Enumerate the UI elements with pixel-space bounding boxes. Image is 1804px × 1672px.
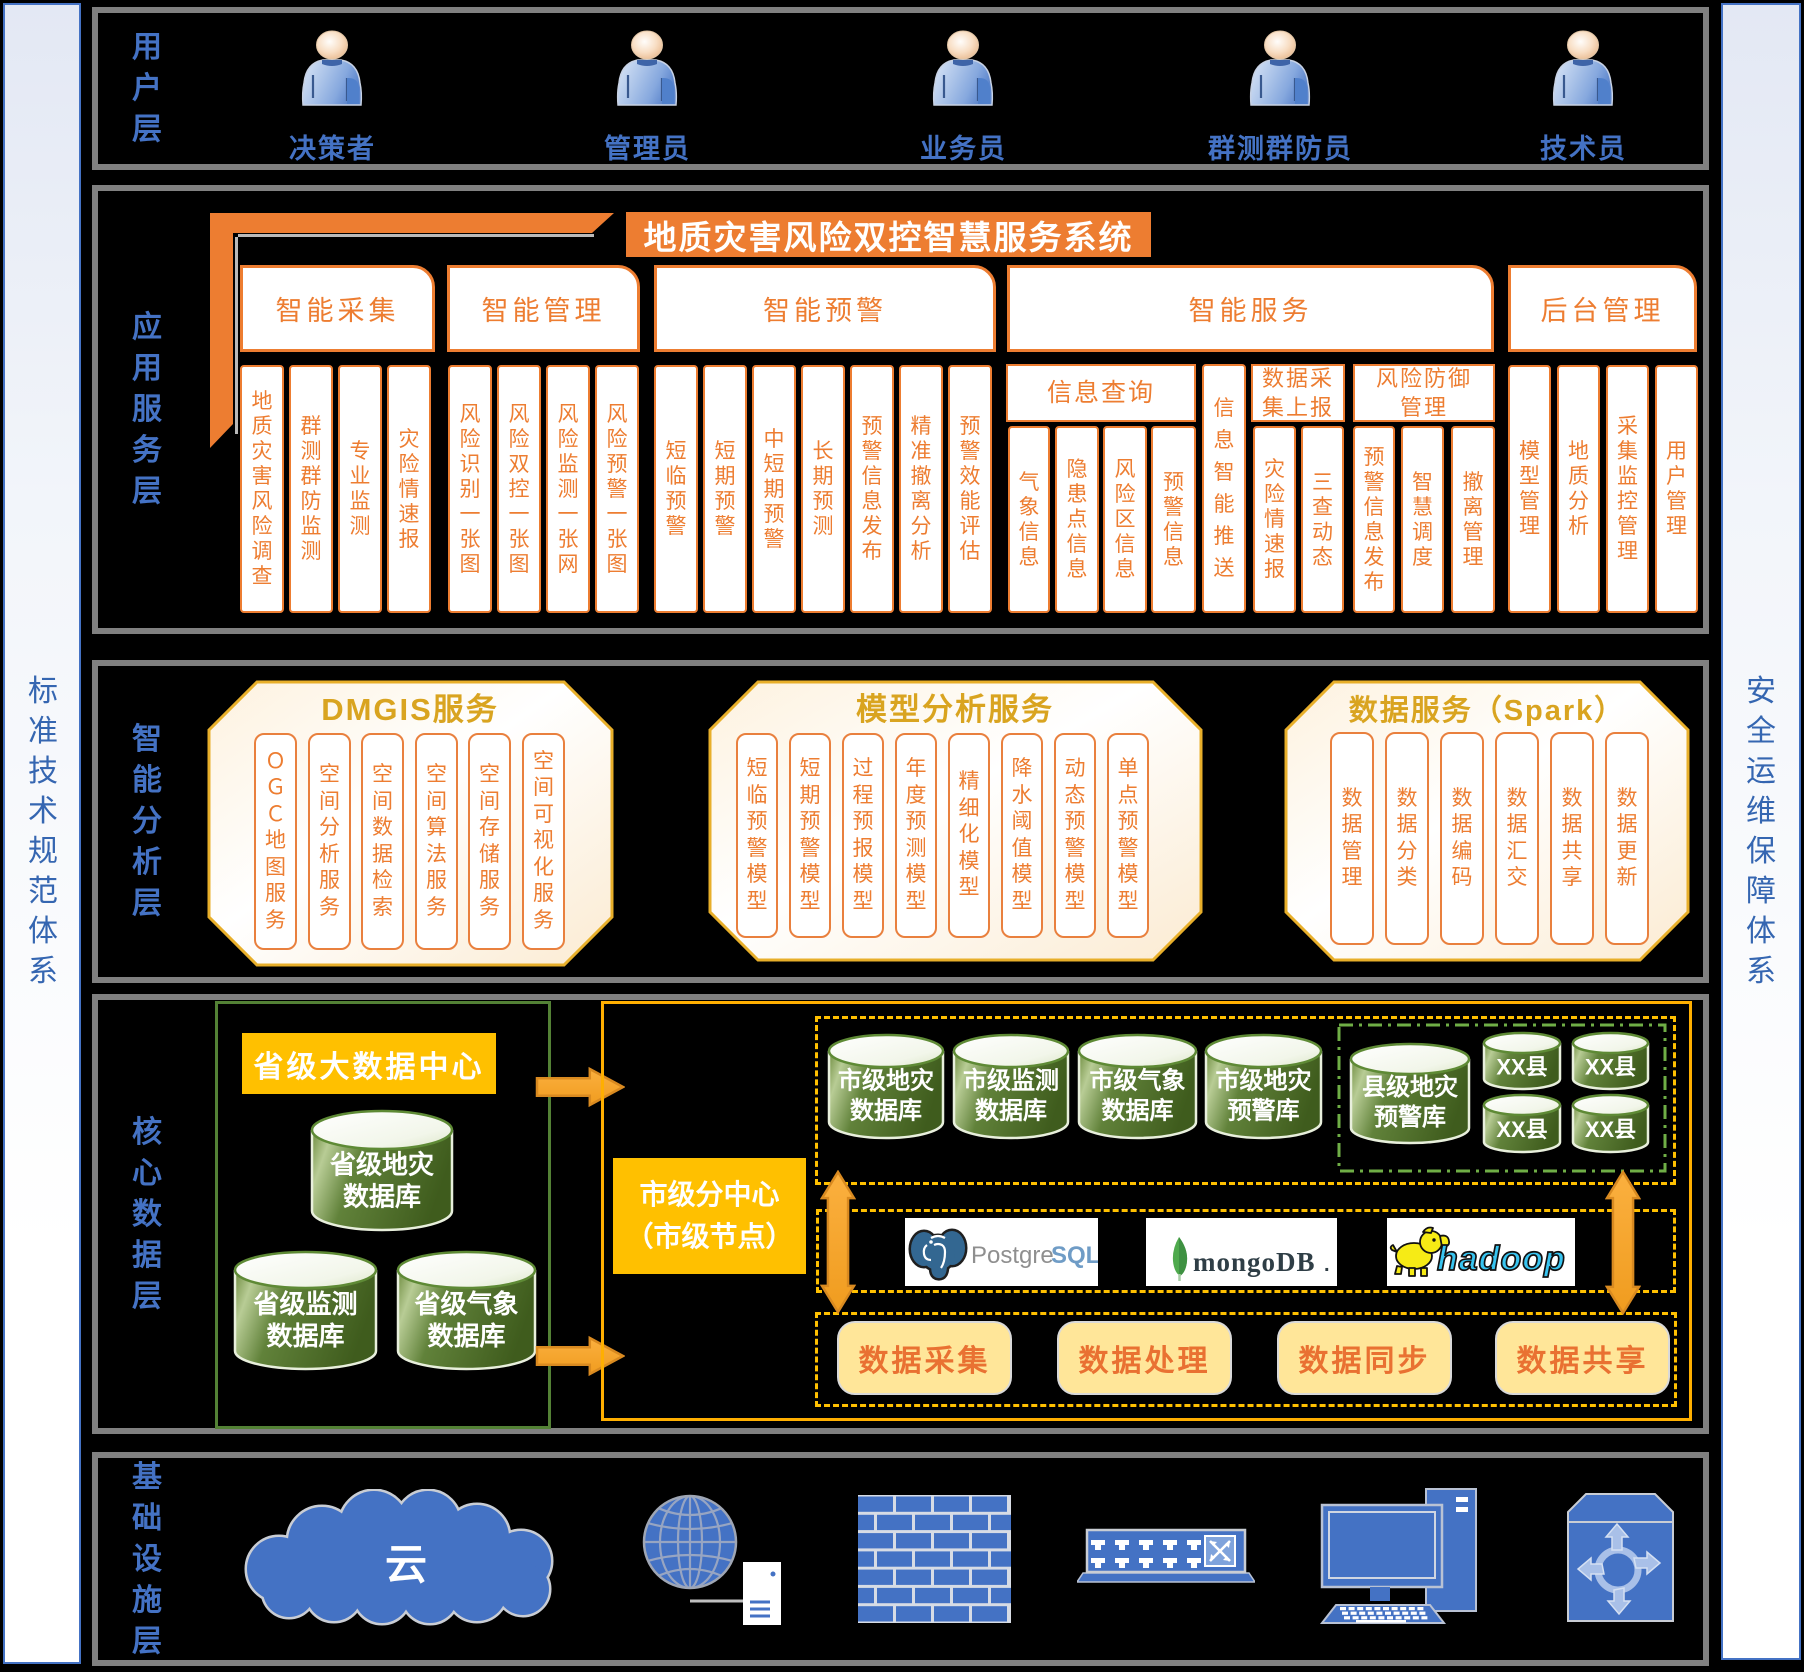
svg-text:预警库: 预警库 [1374, 1104, 1446, 1131]
svg-text:数据服务（Spark）: 数据服务（Spark） [1349, 694, 1626, 727]
svg-text:hadoop: hadoop [1437, 1240, 1566, 1278]
svg-text:mongoDB: mongoDB [1193, 1247, 1316, 1277]
svg-text:市级监测: 市级监测 [963, 1067, 1059, 1095]
svg-text:XX县: XX县 [1496, 1117, 1547, 1142]
svg-text:数据库: 数据库 [975, 1097, 1047, 1124]
svg-text:省级气象: 省级气象 [413, 1289, 518, 1319]
svg-text:数据库: 数据库 [343, 1182, 421, 1212]
svg-text:数据库: 数据库 [850, 1097, 922, 1124]
svg-text:数据库: 数据库 [427, 1321, 505, 1351]
svg-text:模型分析服务: 模型分析服务 [856, 692, 1054, 727]
svg-text:市级地灾: 市级地灾 [1216, 1067, 1312, 1095]
svg-text:XX县: XX县 [1585, 1054, 1636, 1079]
svg-text:市级气象: 市级气象 [1090, 1067, 1186, 1095]
svg-text:云: 云 [385, 1541, 427, 1588]
svg-text:县级地灾: 县级地灾 [1362, 1073, 1458, 1101]
svg-text:预警库: 预警库 [1228, 1097, 1300, 1124]
svg-text:SQL: SQL [1051, 1242, 1098, 1269]
svg-text:XX县: XX县 [1585, 1117, 1636, 1142]
svg-text:Postgre: Postgre [971, 1242, 1054, 1269]
svg-text:DMGIS服务: DMGIS服务 [321, 692, 499, 727]
svg-text:省级监测: 省级监测 [252, 1289, 357, 1319]
svg-text:XX县: XX县 [1496, 1054, 1547, 1079]
svg-text:.: . [1324, 1254, 1330, 1276]
svg-text:省级地灾: 省级地灾 [329, 1149, 434, 1179]
svg-text:市级地灾: 市级地灾 [838, 1067, 934, 1095]
svg-text:数据库: 数据库 [1102, 1097, 1174, 1124]
svg-text:数据库: 数据库 [266, 1321, 344, 1351]
